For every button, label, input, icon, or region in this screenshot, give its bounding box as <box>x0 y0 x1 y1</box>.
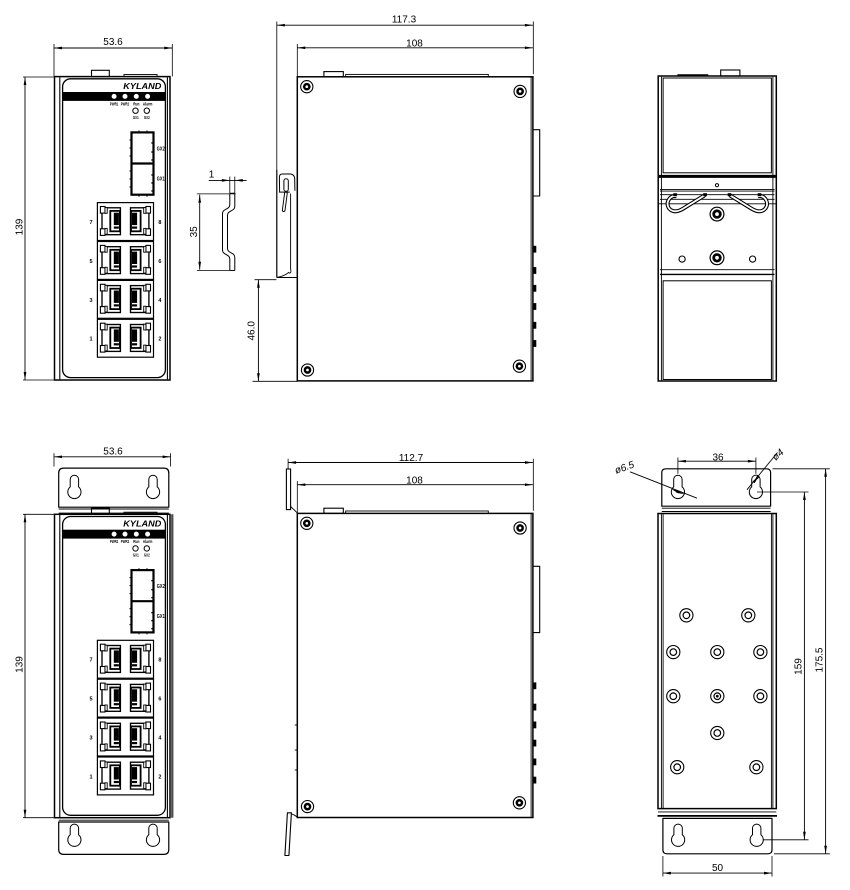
svg-text:Run: Run <box>133 101 139 106</box>
svg-text:36: 36 <box>712 452 724 463</box>
svg-text:117.3: 117.3 <box>392 15 417 26</box>
svg-text:8: 8 <box>158 658 161 664</box>
svg-text:3: 3 <box>89 736 92 742</box>
svg-text:KYLAND: KYLAND <box>123 81 161 91</box>
svg-text:139: 139 <box>15 218 26 235</box>
svg-text:GX1: GX1 <box>157 176 165 182</box>
svg-text:175.5: 175.5 <box>815 647 826 672</box>
svg-text:6: 6 <box>158 697 161 703</box>
svg-text:53.6: 53.6 <box>103 447 123 458</box>
svg-text:50: 50 <box>712 863 724 874</box>
svg-text:159: 159 <box>794 658 805 675</box>
svg-text:139: 139 <box>15 656 26 673</box>
svg-text:PWR1: PWR1 <box>110 539 119 544</box>
svg-text:53.6: 53.6 <box>103 37 123 48</box>
svg-text:PWR1: PWR1 <box>110 101 119 106</box>
svg-text:6: 6 <box>158 259 161 265</box>
svg-text:5: 5 <box>89 697 92 703</box>
svg-text:Alarm: Alarm <box>143 539 153 544</box>
svg-text:1: 1 <box>89 337 92 343</box>
svg-text:GX2: GX2 <box>157 146 165 152</box>
svg-text:GX1: GX1 <box>133 115 139 120</box>
svg-text:1: 1 <box>89 774 92 780</box>
svg-text:GX1: GX1 <box>157 614 165 620</box>
svg-text:GX2: GX2 <box>144 553 150 558</box>
svg-text:2: 2 <box>158 337 161 343</box>
svg-text:KYLAND: KYLAND <box>123 519 161 529</box>
svg-text:5: 5 <box>89 259 92 265</box>
svg-text:GX1: GX1 <box>133 553 139 558</box>
svg-text:PWR2: PWR2 <box>121 101 130 106</box>
svg-text:7: 7 <box>89 220 92 226</box>
svg-text:PWR2: PWR2 <box>121 539 130 544</box>
svg-text:1: 1 <box>209 170 215 181</box>
svg-text:2: 2 <box>158 774 161 780</box>
svg-text:46.0: 46.0 <box>247 321 258 341</box>
svg-text:3: 3 <box>89 298 92 304</box>
svg-text:Alarm: Alarm <box>143 101 153 106</box>
svg-text:GX2: GX2 <box>157 584 165 590</box>
svg-text:Run: Run <box>133 539 139 544</box>
svg-text:8: 8 <box>158 220 161 226</box>
svg-text:7: 7 <box>89 658 92 664</box>
svg-text:GX2: GX2 <box>144 115 150 120</box>
svg-text:35: 35 <box>189 226 200 238</box>
